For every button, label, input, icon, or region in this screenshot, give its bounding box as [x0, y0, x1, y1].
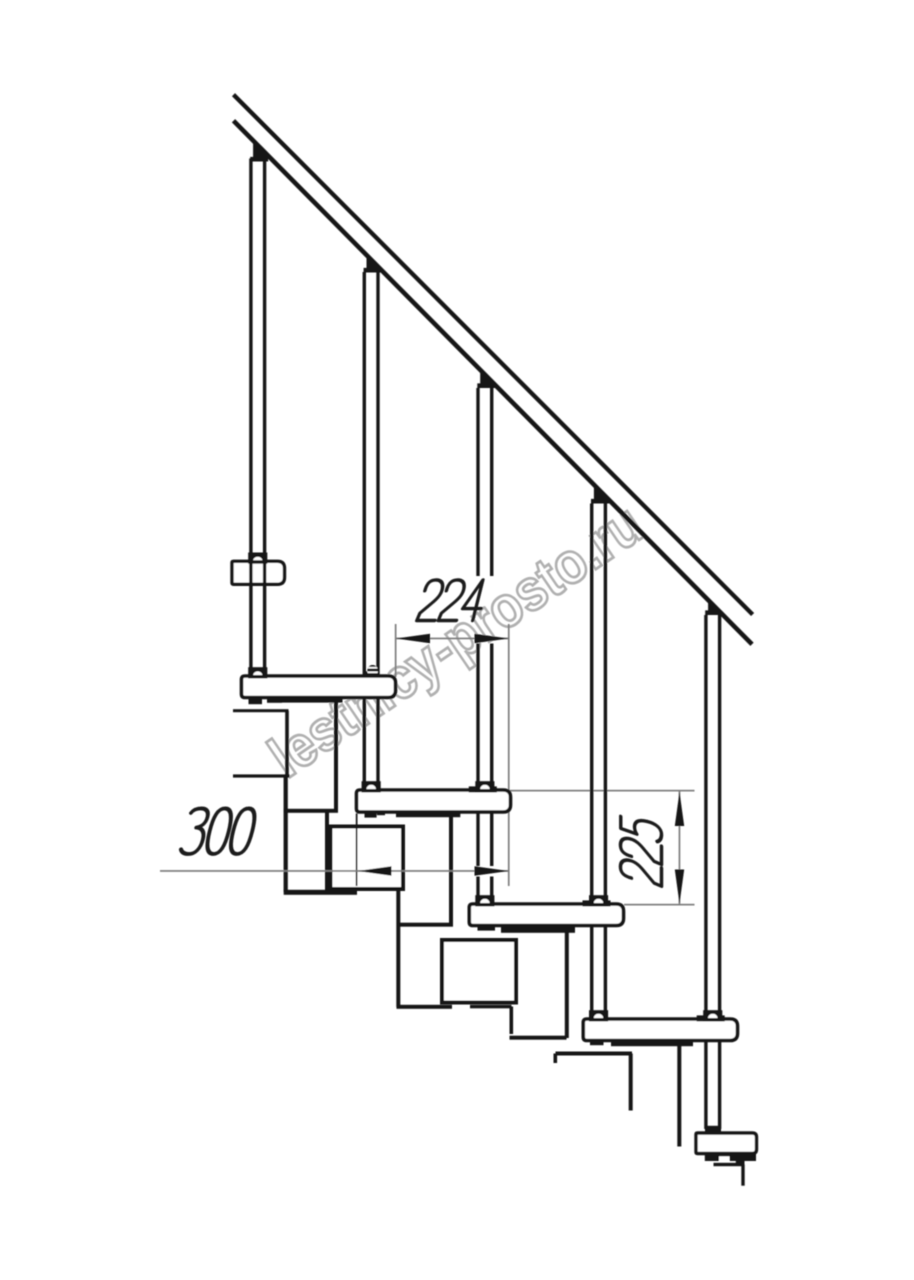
- svg-text:lestnicy-prosto.ru: lestnicy-prosto.ru: [257, 491, 654, 790]
